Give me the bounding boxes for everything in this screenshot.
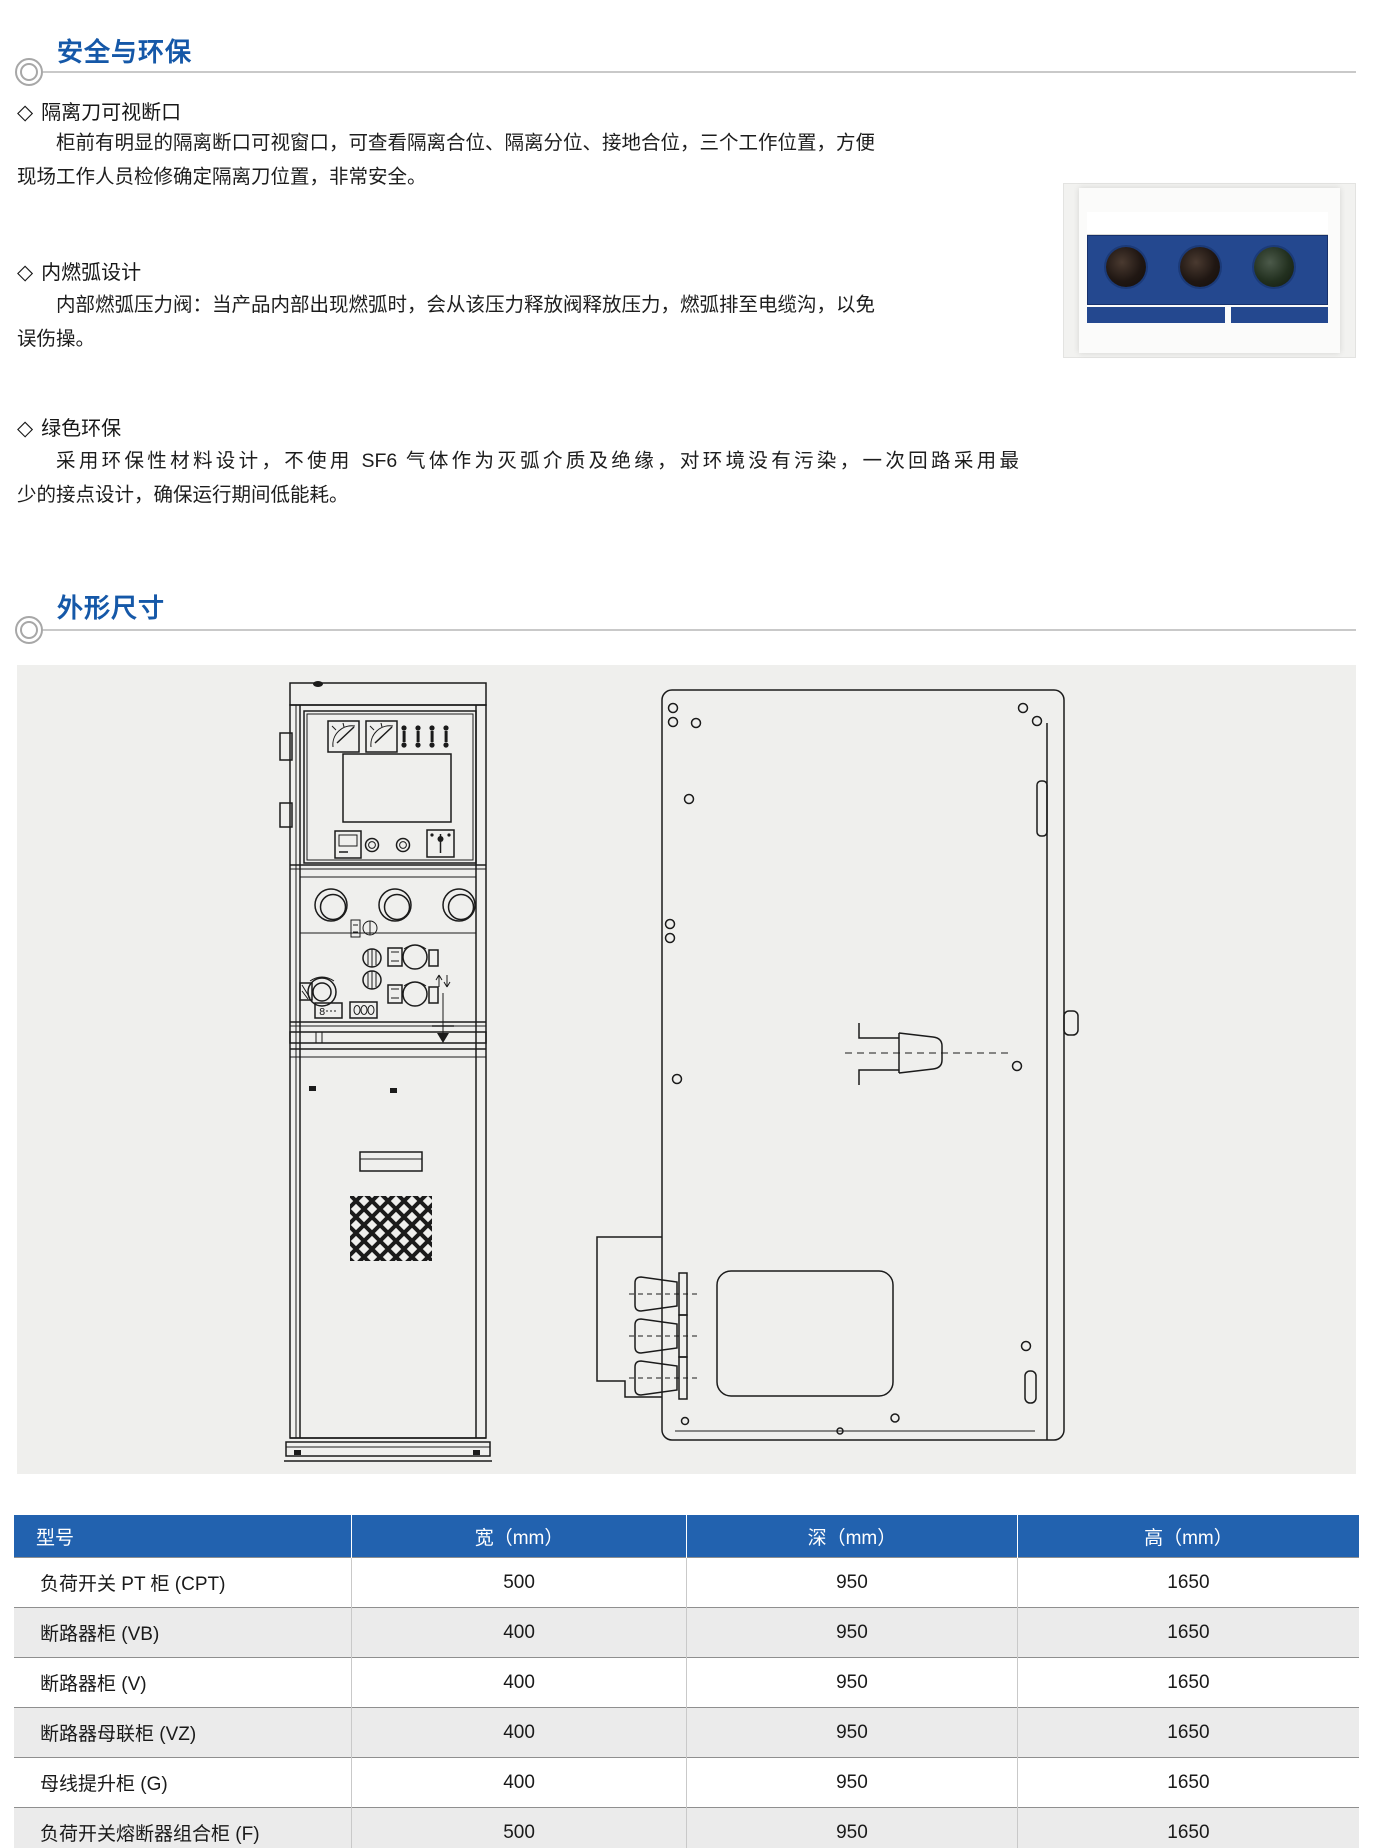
subsection-label: 隔离刀可视断口 bbox=[41, 102, 181, 124]
cell-model: 断路器柜 (VB) bbox=[14, 1608, 352, 1658]
cell-height: 1650 bbox=[1017, 1758, 1359, 1808]
cell-model: 负荷开关熔断器组合柜 (F) bbox=[14, 1808, 352, 1848]
subsection-heading: ◇隔离刀可视断口 bbox=[17, 96, 181, 125]
col-header-height: 高（mm） bbox=[1017, 1515, 1359, 1558]
col-header-model: 型号 bbox=[14, 1515, 352, 1558]
paragraph-line: 现场工作人员检修确定隔离刀位置，非常安全。 bbox=[17, 160, 875, 194]
cell-height: 1650 bbox=[1017, 1558, 1359, 1608]
viewing-port-icon bbox=[1106, 247, 1146, 287]
cell-model: 断路器母联柜 (VZ) bbox=[14, 1708, 352, 1758]
cell-height: 1650 bbox=[1017, 1658, 1359, 1708]
dimensions-table: 型号 宽（mm） 深（mm） 高（mm） 负荷开关 PT 柜 (CPT) 500… bbox=[14, 1515, 1359, 1848]
photo-top-strip bbox=[1087, 212, 1328, 236]
viewing-window bbox=[1087, 235, 1328, 305]
section-title-dimensions: 外形尺寸 bbox=[57, 588, 165, 625]
diamond-icon: ◇ bbox=[17, 101, 33, 124]
section-title-safety: 安全与环保 bbox=[57, 32, 192, 69]
viewing-port-icon bbox=[1180, 247, 1220, 287]
cell-height: 1650 bbox=[1017, 1608, 1359, 1658]
subsection-label: 绿色环保 bbox=[41, 418, 121, 440]
cabinet-side-view-drawing bbox=[585, 681, 1085, 1465]
section-rule bbox=[43, 629, 1356, 631]
paragraph-line: 少的接点设计，确保运行期间低能耗。 bbox=[17, 478, 1019, 512]
cabinet-front-view-drawing: 8 bbox=[276, 681, 496, 1465]
table-row: 断路器柜 (V) 400 950 1650 bbox=[14, 1658, 1359, 1708]
subsection-heading: ◇绿色环保 bbox=[17, 412, 121, 441]
col-header-width: 宽（mm） bbox=[352, 1515, 687, 1558]
paragraph-line: 内部燃弧压力阀：当产品内部出现燃弧时，会从该压力释放阀释放压力，燃弧排至电缆沟，… bbox=[17, 288, 875, 322]
col-header-depth: 深（mm） bbox=[686, 1515, 1017, 1558]
cell-depth: 950 bbox=[686, 1708, 1017, 1758]
cell-height: 1650 bbox=[1017, 1808, 1359, 1848]
subsection-label: 内燃弧设计 bbox=[41, 262, 141, 284]
section-rule bbox=[43, 71, 1356, 73]
table-row: 断路器柜 (VB) 400 950 1650 bbox=[14, 1608, 1359, 1658]
table-row: 负荷开关 PT 柜 (CPT) 500 950 1650 bbox=[14, 1558, 1359, 1608]
cell-width: 400 bbox=[352, 1658, 687, 1708]
cell-width: 400 bbox=[352, 1608, 687, 1658]
diamond-icon: ◇ bbox=[17, 261, 33, 284]
bullet-ring-icon bbox=[15, 616, 43, 644]
cell-depth: 950 bbox=[686, 1808, 1017, 1848]
section-dimensions-header: 外形尺寸 bbox=[0, 588, 1373, 668]
viewing-port-icon bbox=[1254, 247, 1294, 287]
cell-width: 500 bbox=[352, 1558, 687, 1608]
paragraph-line: 柜前有明显的隔离断口可视窗口，可查看隔离合位、隔离分位、接地合位，三个工作位置，… bbox=[17, 126, 875, 160]
table-header-row: 型号 宽（mm） 深（mm） 高（mm） bbox=[14, 1515, 1359, 1558]
cell-width: 400 bbox=[352, 1758, 687, 1808]
drawings-panel: 8 bbox=[17, 665, 1356, 1474]
svg-text:8: 8 bbox=[319, 1007, 325, 1018]
bullet-ring-icon bbox=[15, 58, 43, 86]
cell-model: 母线提升柜 (G) bbox=[14, 1758, 352, 1808]
cell-depth: 950 bbox=[686, 1658, 1017, 1708]
photo-bottom-strip bbox=[1087, 307, 1225, 323]
cell-depth: 950 bbox=[686, 1608, 1017, 1658]
cell-model: 负荷开关 PT 柜 (CPT) bbox=[14, 1558, 352, 1608]
product-photo bbox=[1063, 183, 1356, 358]
cell-width: 400 bbox=[352, 1708, 687, 1758]
table-row: 母线提升柜 (G) 400 950 1650 bbox=[14, 1758, 1359, 1808]
subsection-heading: ◇内燃弧设计 bbox=[17, 256, 141, 285]
cell-width: 500 bbox=[352, 1808, 687, 1848]
catalog-page: 安全与环保 ◇隔离刀可视断口 柜前有明显的隔离断口可视窗口，可查看隔离合位、隔离… bbox=[0, 0, 1373, 1848]
cell-depth: 950 bbox=[686, 1758, 1017, 1808]
paragraph-line: 采用环保性材料设计，不使用 SF6 气体作为灭弧介质及绝缘，对环境没有污染，一次… bbox=[17, 444, 1019, 478]
table-row: 断路器母联柜 (VZ) 400 950 1650 bbox=[14, 1708, 1359, 1758]
photo-bottom-strip bbox=[1231, 307, 1328, 323]
paragraph: 内部燃弧压力阀：当产品内部出现燃弧时，会从该压力释放阀释放压力，燃弧排至电缆沟，… bbox=[17, 288, 875, 356]
cell-model: 断路器柜 (V) bbox=[14, 1658, 352, 1708]
section-safety-header: 安全与环保 bbox=[0, 32, 1373, 112]
diamond-icon: ◇ bbox=[17, 417, 33, 440]
paragraph: 柜前有明显的隔离断口可视窗口，可查看隔离合位、隔离分位、接地合位，三个工作位置，… bbox=[17, 126, 875, 194]
paragraph: 采用环保性材料设计，不使用 SF6 气体作为灭弧介质及绝缘，对环境没有污染，一次… bbox=[17, 444, 1019, 512]
cell-depth: 950 bbox=[686, 1558, 1017, 1608]
cell-height: 1650 bbox=[1017, 1708, 1359, 1758]
table-row: 负荷开关熔断器组合柜 (F) 500 950 1650 bbox=[14, 1808, 1359, 1848]
paragraph-line: 误伤操。 bbox=[17, 322, 875, 356]
